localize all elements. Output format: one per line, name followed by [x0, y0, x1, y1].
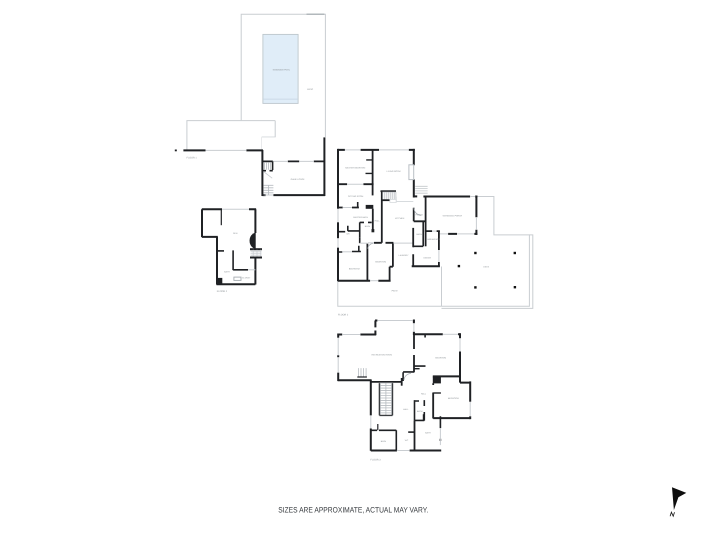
svg-text:FLOOR 1: FLOOR 1	[187, 157, 198, 160]
svg-text:BREAKFAST: BREAKFAST	[427, 238, 440, 241]
svg-text:BATH: BATH	[425, 432, 431, 435]
svg-text:FLOOR 2: FLOOR 2	[217, 290, 228, 293]
svg-text:PATIO: PATIO	[307, 88, 313, 91]
svg-text:FOYER: FOYER	[415, 213, 423, 216]
svg-text:FLOOR 3: FLOOR 3	[370, 458, 381, 461]
svg-text:LAUNDRY: LAUNDRY	[399, 254, 410, 257]
svg-text:KITCHEN: KITCHEN	[395, 217, 405, 220]
svg-text:CLOSET: CLOSET	[242, 277, 251, 280]
svg-text:DEN: DEN	[233, 232, 238, 235]
svg-text:WC: WC	[346, 232, 350, 235]
svg-text:BEDROOM: BEDROOM	[435, 356, 446, 359]
svg-text:DECK: DECK	[483, 266, 489, 269]
svg-text:BATH: BATH	[365, 225, 371, 228]
svg-text:MASTER BATH: MASTER BATH	[353, 216, 368, 219]
svg-text:BEDROOM: BEDROOM	[448, 397, 459, 400]
svg-text:SIZES ARE APPROXIMATE, ACTUAL: SIZES ARE APPROXIMATE, ACTUAL MAY VARY.	[278, 505, 428, 514]
svg-text:LIVING ROOM: LIVING ROOM	[387, 170, 401, 173]
svg-text:HALL: HALL	[375, 220, 381, 223]
svg-text:DINING: DINING	[424, 256, 432, 259]
svg-text:SITTING ROOM: SITTING ROOM	[348, 195, 364, 198]
svg-text:BATH: BATH	[224, 270, 230, 273]
svg-text:BATH: BATH	[381, 440, 387, 443]
svg-text:BATH: BATH	[417, 410, 423, 413]
svg-text:SCREENED PORCH: SCREENED PORCH	[442, 214, 462, 217]
svg-text:BATH: BATH	[417, 233, 423, 236]
svg-text:GAME LODGE: GAME LODGE	[291, 178, 306, 181]
svg-text:PATIO: PATIO	[392, 290, 398, 293]
svg-text:MASTER BEDROOM: MASTER BEDROOM	[345, 167, 365, 170]
svg-text:BEDROOM: BEDROOM	[349, 267, 360, 270]
svg-text:SWIMMING POOL: SWIMMING POOL	[273, 69, 291, 72]
svg-text:BEDROOM: BEDROOM	[375, 260, 386, 263]
svg-text:HALL: HALL	[403, 408, 409, 411]
svg-text:WC: WC	[405, 439, 409, 442]
svg-text:HALL: HALL	[421, 393, 427, 396]
svg-text:RECREATION ROOM: RECREATION ROOM	[371, 354, 392, 357]
svg-text:FLOOR 2: FLOOR 2	[338, 313, 349, 316]
